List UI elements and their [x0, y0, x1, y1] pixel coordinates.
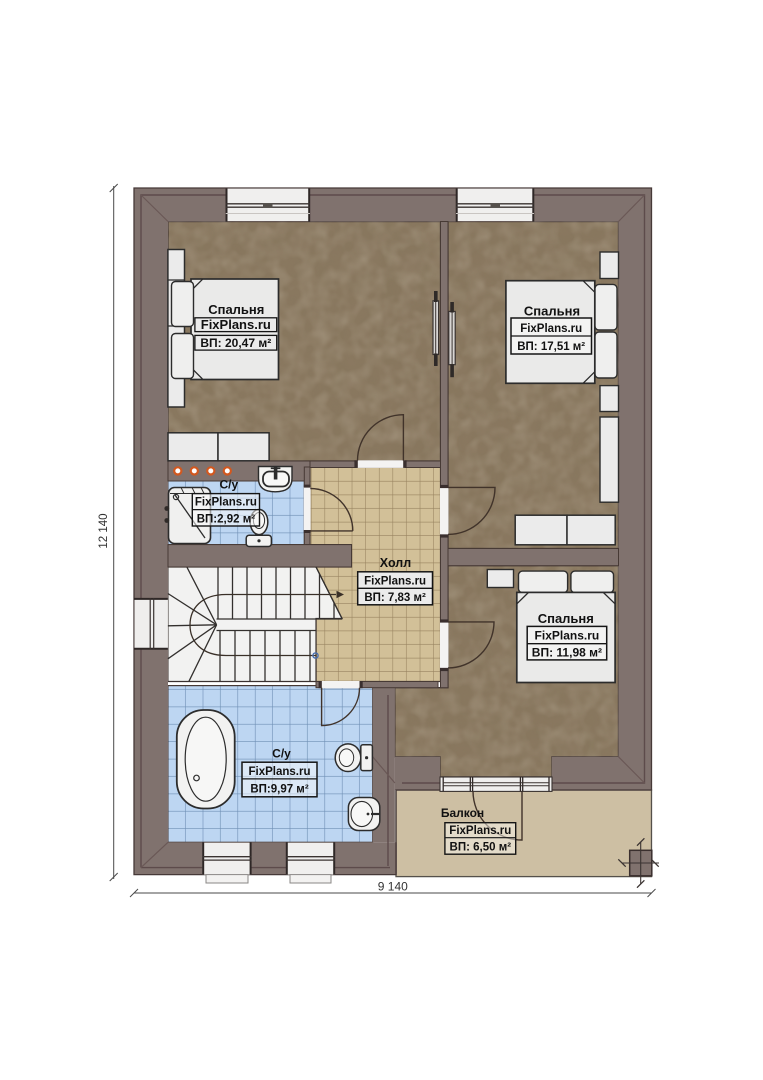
svg-text:FixPlans.ru: FixPlans.ru	[201, 317, 271, 332]
svg-text:ВП:9,97 м²: ВП:9,97 м²	[250, 783, 308, 795]
svg-text:FixPlans.ru: FixPlans.ru	[535, 629, 600, 643]
svg-text:Спальня: Спальня	[208, 302, 264, 317]
svg-text:ВП: 6,50 м²: ВП: 6,50 м²	[450, 841, 512, 853]
svg-text:FixPlans.ru: FixPlans.ru	[249, 766, 311, 778]
svg-text:ВП:2,92 м²: ВП:2,92 м²	[197, 513, 255, 525]
svg-text:Балкон: Балкон	[441, 806, 484, 820]
svg-text:9 140: 9 140	[378, 880, 408, 894]
svg-text:ВП: 20,47 м²: ВП: 20,47 м²	[200, 336, 271, 350]
svg-text:Спальня: Спальня	[524, 304, 580, 319]
svg-text:12 140: 12 140	[98, 513, 110, 548]
svg-text:Спальня: Спальня	[538, 611, 594, 626]
svg-text:FixPlans.ru: FixPlans.ru	[449, 825, 511, 837]
svg-text:FixPlans.ru: FixPlans.ru	[520, 323, 582, 335]
svg-text:Холл: Холл	[380, 556, 411, 570]
svg-text:ВП: 7,83 м²: ВП: 7,83 м²	[364, 592, 426, 604]
svg-text:FixPlans.ru: FixPlans.ru	[195, 497, 257, 509]
svg-text:ВП: 11,98 м²: ВП: 11,98 м²	[532, 646, 602, 660]
svg-text:ВП: 17,51 м²: ВП: 17,51 м²	[517, 341, 585, 353]
svg-text:С/у: С/у	[219, 478, 238, 492]
svg-text:С/у: С/у	[272, 747, 291, 761]
svg-text:FixPlans.ru: FixPlans.ru	[364, 576, 426, 588]
